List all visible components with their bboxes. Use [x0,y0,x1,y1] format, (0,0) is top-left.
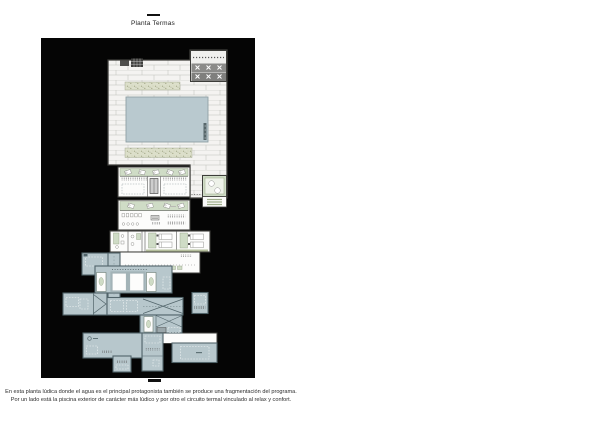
planting-strip-upper [125,82,180,90]
central-hall [107,298,183,316]
caption-line-1: En esta planta lúdica donde el agua es e… [5,388,297,396]
stair [150,179,158,194]
sauna-pools-band [95,266,172,293]
plant-figure [99,278,103,286]
changing-rooms-row [110,231,210,252]
relax-room-block-2 [118,200,190,230]
presentation-sheet: Planta Termas [0,0,600,426]
bar-counter-block [120,61,129,67]
locker-row [167,222,186,226]
whirlpool-room [203,176,227,197]
south-east-room [172,343,217,363]
bench-row [162,178,188,182]
plant-figure [149,278,153,286]
south-west-bar [83,333,142,358]
plunge-pool [112,273,128,292]
pool-steps [204,123,207,140]
outdoor-pool [126,97,208,142]
plunge-pool [129,273,145,292]
service-nook [203,197,227,208]
locker-row [167,214,186,218]
thermal-circuit [63,252,217,372]
south-stub-room [113,356,131,372]
west-wing [63,293,107,315]
east-room [192,293,208,314]
relax-room-block-1 [118,167,190,197]
floor-plan-drawing [0,0,600,426]
caption: En esta planta lúdica donde el agua es e… [5,388,297,405]
planting-strip-lower [125,148,192,158]
bench-row [122,178,147,182]
caption-line-2: Por un lado está la piscina exterior de … [5,396,297,404]
mid-block [140,315,182,333]
plant-figure [147,320,151,328]
south-column [142,333,163,371]
caption-rule [148,379,161,382]
sun-lounger-zone [191,51,227,82]
stair [157,328,166,333]
